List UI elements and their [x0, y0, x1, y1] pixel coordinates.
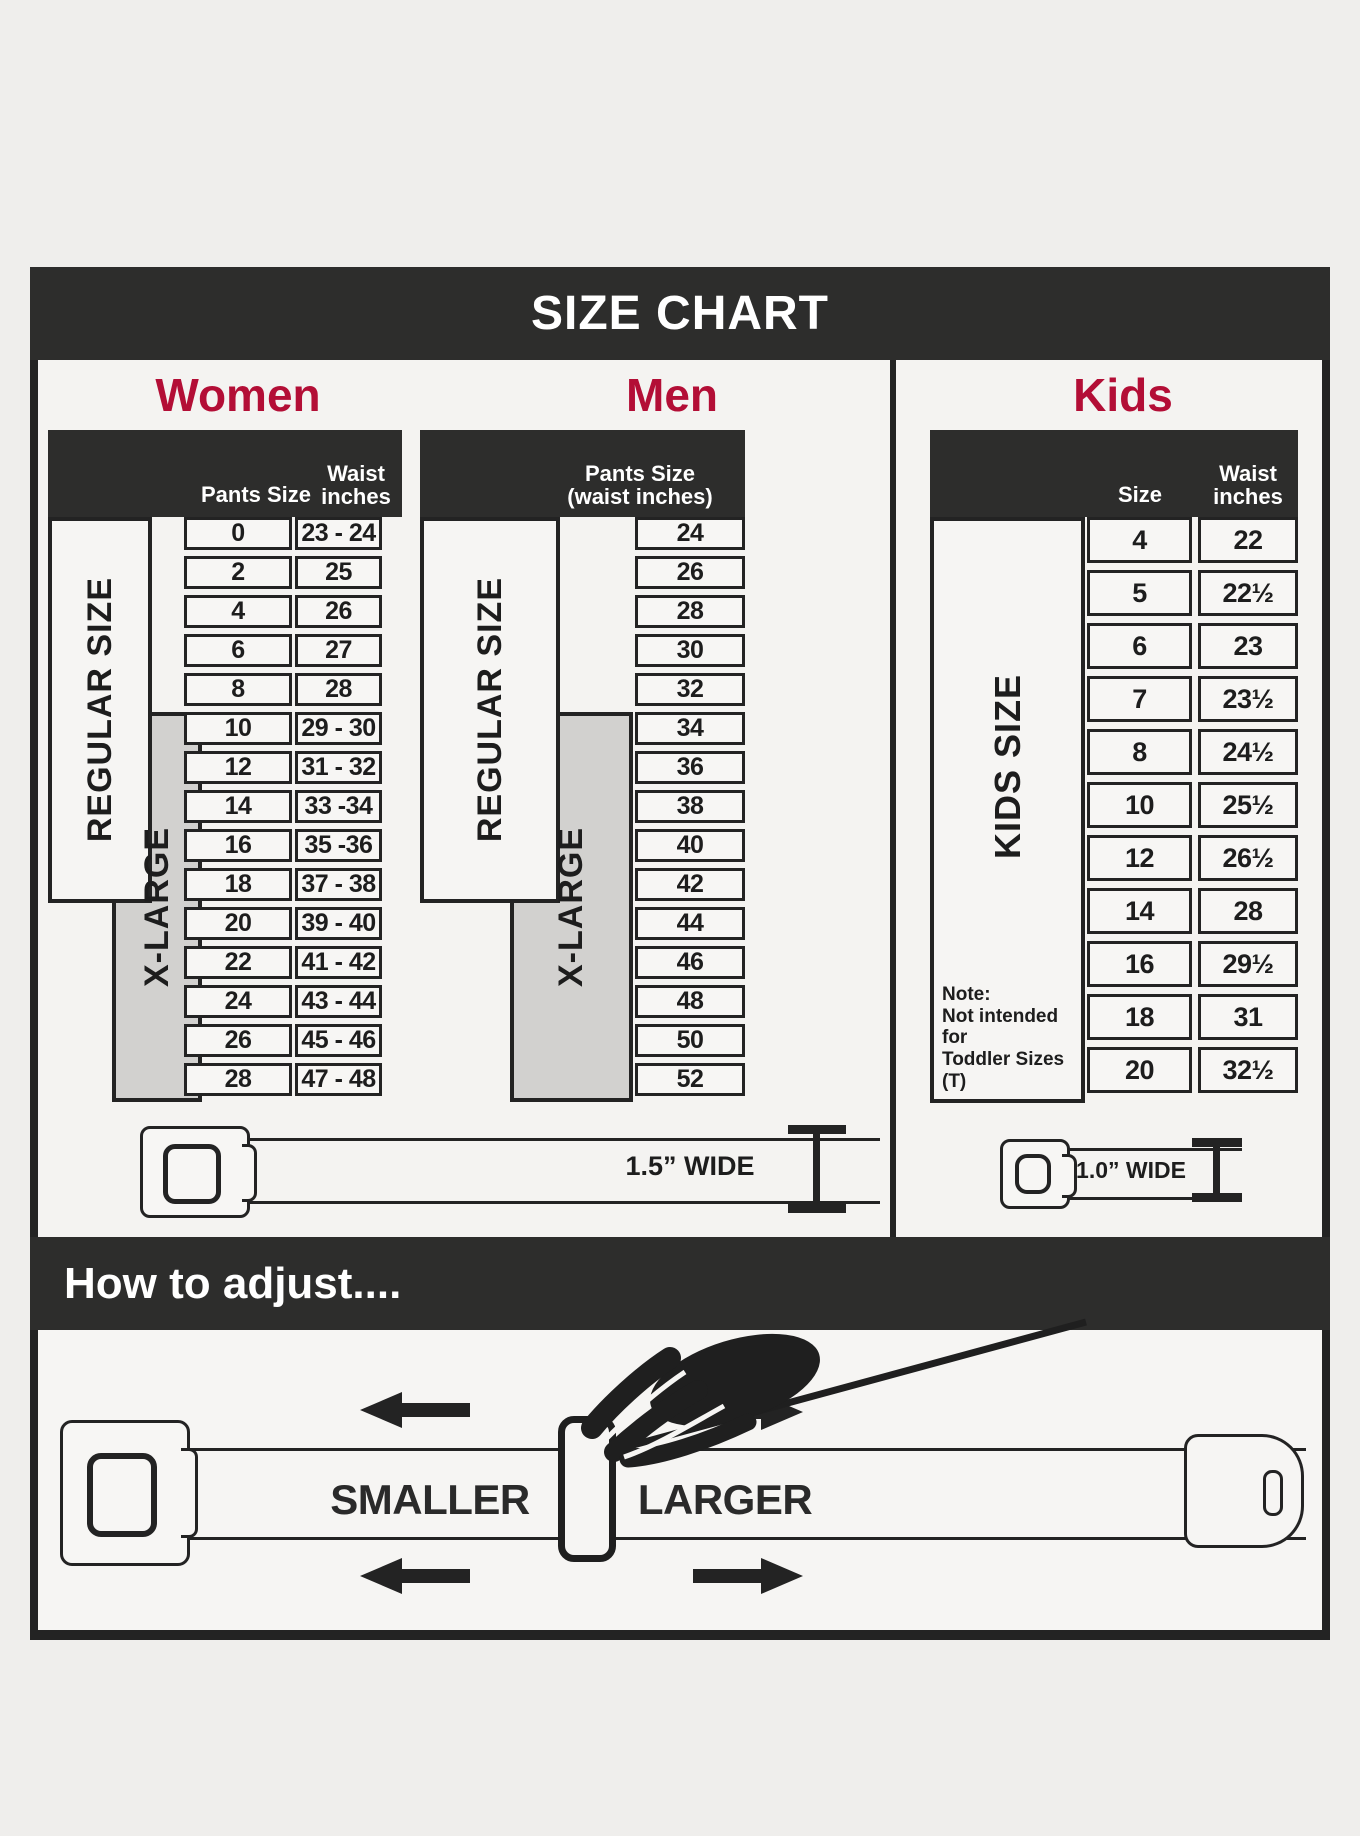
size-cell: 6: [1087, 623, 1192, 669]
seatbelt-buckle-icon: [1000, 1139, 1070, 1209]
men-table-row: 34: [635, 712, 745, 745]
pants-size-cell: 42: [635, 868, 745, 901]
size-cell: 4: [1087, 517, 1192, 563]
pants-size-cell: 28: [635, 595, 745, 628]
men-regular-box: [420, 517, 560, 903]
women-table-row: 14 33 -34: [184, 790, 382, 823]
pants-size-cell: 18: [184, 868, 292, 901]
waist-cell: 25: [295, 556, 382, 589]
women-table-row: 18 37 - 38: [184, 868, 382, 901]
kids-col-waist: Waist inches: [1190, 462, 1306, 510]
women-table-row: 0 23 - 24: [184, 517, 382, 550]
pants-size-cell: 40: [635, 829, 745, 862]
women-col-waist: Waist inches: [310, 462, 402, 510]
women-table-row: 10 29 - 30: [184, 712, 382, 745]
pants-size-cell: 12: [184, 751, 292, 784]
waist-cell: 29½: [1198, 941, 1298, 987]
pants-size-cell: 34: [635, 712, 745, 745]
how-to-adjust-title: How to adjust....: [64, 1259, 401, 1309]
waist-cell: 35 -36: [295, 829, 382, 862]
pants-size-cell: 38: [635, 790, 745, 823]
women-size-table: 0 23 - 24 2 25 4 26 6 27: [184, 517, 382, 1102]
size-cell: 8: [1087, 729, 1192, 775]
kids-table-row: 18 31: [1087, 994, 1298, 1040]
waist-cell: 47 - 48: [295, 1063, 382, 1096]
women-table-row: 22 41 - 42: [184, 946, 382, 979]
kids-table-row: 8 24½: [1087, 729, 1298, 775]
waist-cell: 23 - 24: [295, 517, 382, 550]
women-table-row: 4 26: [184, 595, 382, 628]
larger-label: LARGER: [590, 1476, 860, 1524]
kids-heading: Kids: [973, 368, 1273, 422]
men-table-row: 48: [635, 985, 745, 1018]
women-table-row: 26 45 - 46: [184, 1024, 382, 1057]
smaller-label: SMALLER: [270, 1476, 590, 1524]
pants-size-cell: 20: [184, 907, 292, 940]
belt-tip: [1184, 1434, 1304, 1548]
waist-cell: 27: [295, 634, 382, 667]
pants-size-cell: 2: [184, 556, 292, 589]
kids-size-box: Note: Not intended for Toddler Sizes (T): [930, 517, 1085, 1103]
men-table-header: Pants Size (waist inches): [420, 430, 745, 517]
waist-cell: 45 - 46: [295, 1024, 382, 1057]
men-table-row: 42: [635, 868, 745, 901]
seatbelt-buckle-icon: [60, 1420, 190, 1566]
arrow-left-icon: [360, 1392, 478, 1428]
pants-size-cell: 26: [635, 556, 745, 589]
women-table-row: 16 35 -36: [184, 829, 382, 862]
pants-size-cell: 10: [184, 712, 292, 745]
size-cell: 12: [1087, 835, 1192, 881]
illus-border-left: [30, 1330, 38, 1640]
pants-size-cell: 16: [184, 829, 292, 862]
kids-table-row: 10 25½: [1087, 782, 1298, 828]
pants-size-cell: 44: [635, 907, 745, 940]
women-col-pants-size: Pants Size: [198, 483, 314, 507]
kids-table-row: 16 29½: [1087, 941, 1298, 987]
waist-cell: 26½: [1198, 835, 1298, 881]
buckle-ring: [87, 1453, 157, 1537]
kids-table-row: 6 23: [1087, 623, 1298, 669]
illus-border-bottom: [30, 1630, 1330, 1640]
men-table-row: 28: [635, 595, 745, 628]
tables-area: Women Men Kids Pants Size Waist inches R…: [30, 360, 1330, 1237]
pants-size-cell: 36: [635, 751, 745, 784]
men-table-row: 50: [635, 1024, 745, 1057]
men-size-table: 24 26 28 30 32 34: [635, 517, 745, 1102]
buckle-ring: [1015, 1154, 1051, 1194]
waist-cell: 28: [1198, 888, 1298, 934]
men-table-row: 26: [635, 556, 745, 589]
width-measure-icon: [1192, 1138, 1242, 1202]
waist-cell: 26: [295, 595, 382, 628]
waist-cell: 41 - 42: [295, 946, 382, 979]
kids-belt-illustration: 1.0” WIDE: [1000, 1135, 1250, 1207]
kids-table-row: 20 32½: [1087, 1047, 1298, 1093]
waist-cell: 32½: [1198, 1047, 1298, 1093]
pants-size-cell: 8: [184, 673, 292, 706]
kids-table-row: 12 26½: [1087, 835, 1298, 881]
arrow-left-icon: [360, 1558, 478, 1594]
waist-cell: 24½: [1198, 729, 1298, 775]
pants-size-cell: 50: [635, 1024, 745, 1057]
size-cell: 5: [1087, 570, 1192, 616]
size-cell: 10: [1087, 782, 1192, 828]
pants-size-cell: 26: [184, 1024, 292, 1057]
men-table-row: 46: [635, 946, 745, 979]
kids-section-divider: [890, 360, 896, 1237]
waist-cell: 28: [295, 673, 382, 706]
kids-table-row: 7 23½: [1087, 676, 1298, 722]
kids-table-row: 5 22½: [1087, 570, 1298, 616]
buckle-ring: [163, 1144, 221, 1204]
panel-border-right: [1322, 360, 1330, 1237]
belt-strap: [240, 1138, 880, 1204]
size-cell: 20: [1087, 1047, 1192, 1093]
pants-size-cell: 46: [635, 946, 745, 979]
women-regular-box: [48, 517, 152, 903]
belt-tip-hole: [1263, 1470, 1283, 1516]
pants-size-cell: 24: [635, 517, 745, 550]
pants-size-cell: 30: [635, 634, 745, 667]
waist-cell: 37 - 38: [295, 868, 382, 901]
size-cell: 16: [1087, 941, 1192, 987]
waist-cell: 39 - 40: [295, 907, 382, 940]
pants-size-cell: 28: [184, 1063, 292, 1096]
women-table-row: 8 28: [184, 673, 382, 706]
men-table-row: 40: [635, 829, 745, 862]
pants-size-cell: 0: [184, 517, 292, 550]
women-table-row: 20 39 - 40: [184, 907, 382, 940]
pants-size-cell: 14: [184, 790, 292, 823]
size-cell: 14: [1087, 888, 1192, 934]
size-chart-panel: SIZE CHART Women Men Kids Pants Size Wai…: [30, 267, 1330, 1640]
waist-cell: 23: [1198, 623, 1298, 669]
size-cell: 7: [1087, 676, 1192, 722]
men-table-row: 32: [635, 673, 745, 706]
arrow-right-icon: [685, 1558, 803, 1594]
kids-col-size: Size: [1080, 483, 1200, 507]
waist-cell: 22: [1198, 517, 1298, 563]
illus-border-right: [1322, 1330, 1330, 1640]
pants-size-cell: 48: [635, 985, 745, 1018]
page-title: SIZE CHART: [531, 286, 829, 341]
pants-size-cell: 4: [184, 595, 292, 628]
seatbelt-buckle-icon: [140, 1126, 250, 1218]
women-table-row: 2 25: [184, 556, 382, 589]
adult-belt-illustration: 1.5” WIDE: [140, 1123, 880, 1215]
women-table-row: 6 27: [184, 634, 382, 667]
men-table-row: 52: [635, 1063, 745, 1096]
pants-size-cell: 6: [184, 634, 292, 667]
waist-cell: 22½: [1198, 570, 1298, 616]
men-table-row: 44: [635, 907, 745, 940]
panel-border-left: [30, 360, 38, 1237]
pants-size-cell: 24: [184, 985, 292, 1018]
kids-table-row: 4 22: [1087, 517, 1298, 563]
women-table-row: 12 31 - 32: [184, 751, 382, 784]
waist-cell: 33 -34: [295, 790, 382, 823]
men-table-row: 30: [635, 634, 745, 667]
waist-cell: 43 - 44: [295, 985, 382, 1018]
men-table-row: 36: [635, 751, 745, 784]
title-bar: SIZE CHART: [30, 267, 1330, 360]
pants-size-cell: 32: [635, 673, 745, 706]
pants-size-cell: 52: [635, 1063, 745, 1096]
kids-table-header: Size Waist inches: [930, 430, 1298, 517]
waist-cell: 31: [1198, 994, 1298, 1040]
kids-size-table: 4 22 5 22½ 6 23 7 23½: [1087, 517, 1298, 1100]
waist-cell: 29 - 30: [295, 712, 382, 745]
women-table-header: Pants Size Waist inches: [48, 430, 402, 517]
women-table-row: 28 47 - 48: [184, 1063, 382, 1096]
kids-note: Note: Not intended for Toddler Sizes (T): [942, 984, 1081, 1093]
waist-cell: 23½: [1198, 676, 1298, 722]
adjustment-illustration: SMALLER LARGER: [30, 1330, 1330, 1640]
width-measure-icon: [788, 1125, 846, 1213]
men-heading: Men: [522, 368, 822, 422]
women-table-row: 24 43 - 44: [184, 985, 382, 1018]
kids-table-row: 14 28: [1087, 888, 1298, 934]
kids-belt-width-label: 1.0” WIDE: [1066, 1157, 1196, 1184]
waist-cell: 25½: [1198, 782, 1298, 828]
how-to-adjust-bar: How to adjust....: [30, 1237, 1330, 1330]
women-heading: Women: [88, 368, 388, 422]
size-cell: 18: [1087, 994, 1192, 1040]
men-table-row: 24: [635, 517, 745, 550]
pants-size-cell: 22: [184, 946, 292, 979]
men-col-pants-size: Pants Size (waist inches): [520, 462, 760, 510]
adult-belt-width-label: 1.5” WIDE: [600, 1151, 780, 1182]
men-table-row: 38: [635, 790, 745, 823]
waist-cell: 31 - 32: [295, 751, 382, 784]
arrow-right-icon: [685, 1394, 803, 1430]
